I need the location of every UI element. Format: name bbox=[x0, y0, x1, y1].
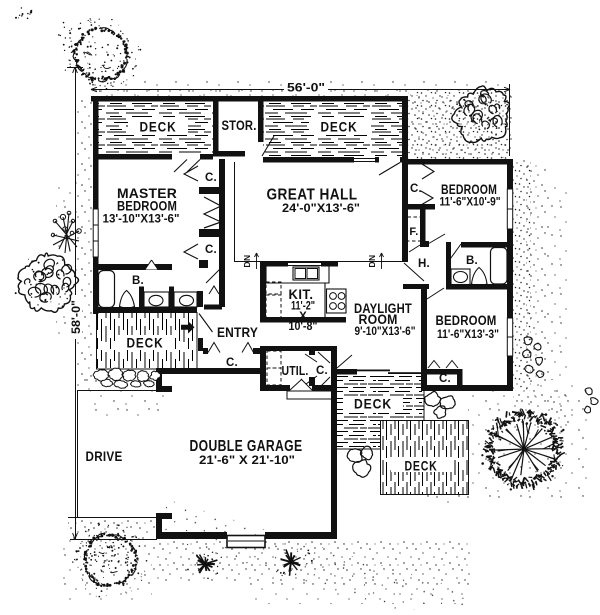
svg-text:DECK: DECK bbox=[140, 119, 177, 135]
svg-text:BEDROOM: BEDROOM bbox=[436, 313, 497, 328]
svg-text:DECK: DECK bbox=[127, 335, 164, 351]
svg-text:DECK: DECK bbox=[354, 396, 392, 412]
svg-text:11'-6"X13'-3": 11'-6"X13'-3" bbox=[437, 327, 499, 341]
svg-text:C.: C. bbox=[205, 244, 217, 256]
svg-text:DECK: DECK bbox=[405, 458, 438, 474]
svg-text:24'-0"X13'-6": 24'-0"X13'-6" bbox=[282, 201, 360, 215]
svg-text:C.: C. bbox=[316, 365, 328, 377]
svg-text:UTIL.: UTIL. bbox=[282, 363, 309, 378]
svg-text:C.: C. bbox=[410, 183, 422, 195]
svg-text:H.: H. bbox=[418, 258, 430, 270]
svg-text:F.: F. bbox=[409, 226, 418, 238]
svg-text:DN: DN bbox=[242, 254, 252, 267]
svg-text:B.: B. bbox=[132, 275, 144, 287]
svg-text:STOR.: STOR. bbox=[222, 118, 257, 133]
svg-text:DECK: DECK bbox=[321, 119, 358, 135]
svg-text:DRIVE: DRIVE bbox=[86, 449, 123, 464]
svg-text:C.: C. bbox=[439, 373, 451, 385]
svg-text:C.: C. bbox=[226, 357, 238, 369]
svg-text:9'-10"X13'-6": 9'-10"X13'-6" bbox=[355, 324, 416, 338]
svg-text:58'-0": 58'-0" bbox=[69, 300, 83, 334]
svg-text:10'-8": 10'-8" bbox=[289, 321, 318, 333]
svg-text:11'-6"X10'-9": 11'-6"X10'-9" bbox=[440, 195, 501, 209]
svg-text:DN: DN bbox=[367, 254, 377, 267]
svg-text:21'-6" X 21'-10": 21'-6" X 21'-10" bbox=[199, 453, 295, 467]
svg-text:C.: C. bbox=[205, 172, 217, 184]
svg-text:56'-0": 56'-0" bbox=[287, 81, 325, 95]
svg-text:B.: B. bbox=[466, 255, 478, 267]
svg-text:ENTRY: ENTRY bbox=[217, 325, 258, 340]
svg-text:13'-10"X13'-6": 13'-10"X13'-6" bbox=[103, 212, 180, 226]
